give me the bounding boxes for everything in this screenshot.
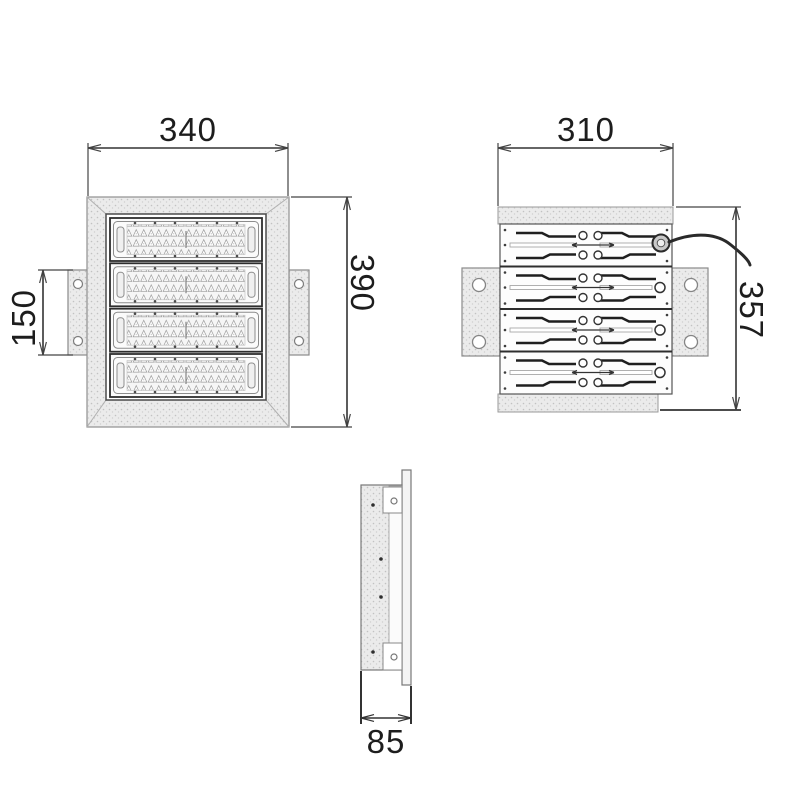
dim-label-front-width: 340 — [138, 112, 238, 148]
led-module-1 — [110, 218, 262, 261]
led-module-3 — [110, 309, 262, 352]
front-left-bracket — [68, 270, 88, 355]
back-view — [462, 143, 750, 412]
dim-label-back-width: 310 — [536, 112, 636, 148]
dim-lines-front-width — [88, 143, 288, 196]
back-top-strip — [498, 207, 673, 224]
side-flange — [402, 470, 411, 685]
side-view — [361, 470, 411, 724]
back-bottom-strip — [498, 394, 658, 412]
back-plate — [500, 224, 672, 394]
back-left-bracket — [462, 268, 500, 356]
led-module-2 — [110, 263, 262, 306]
front-right-bracket — [289, 270, 309, 355]
dim-lines-back-width — [498, 143, 673, 206]
side-bracket-tab-top — [383, 487, 402, 513]
technical-drawing-canvas — [0, 0, 800, 800]
side-bracket-tab-bottom — [383, 643, 402, 670]
cable-gland — [653, 235, 670, 252]
dim-label-side-depth: 85 — [336, 724, 436, 760]
front-view — [38, 143, 352, 427]
dimension-drawing-page: { "title": "recessed LED floodlight dime… — [0, 0, 800, 800]
dim-label-back-height: 357 — [733, 260, 769, 360]
led-module-4 — [110, 354, 262, 397]
back-right-bracket — [672, 268, 708, 356]
dim-label-front-height: 390 — [344, 233, 380, 333]
dim-label-bracket-height: 150 — [6, 268, 42, 368]
